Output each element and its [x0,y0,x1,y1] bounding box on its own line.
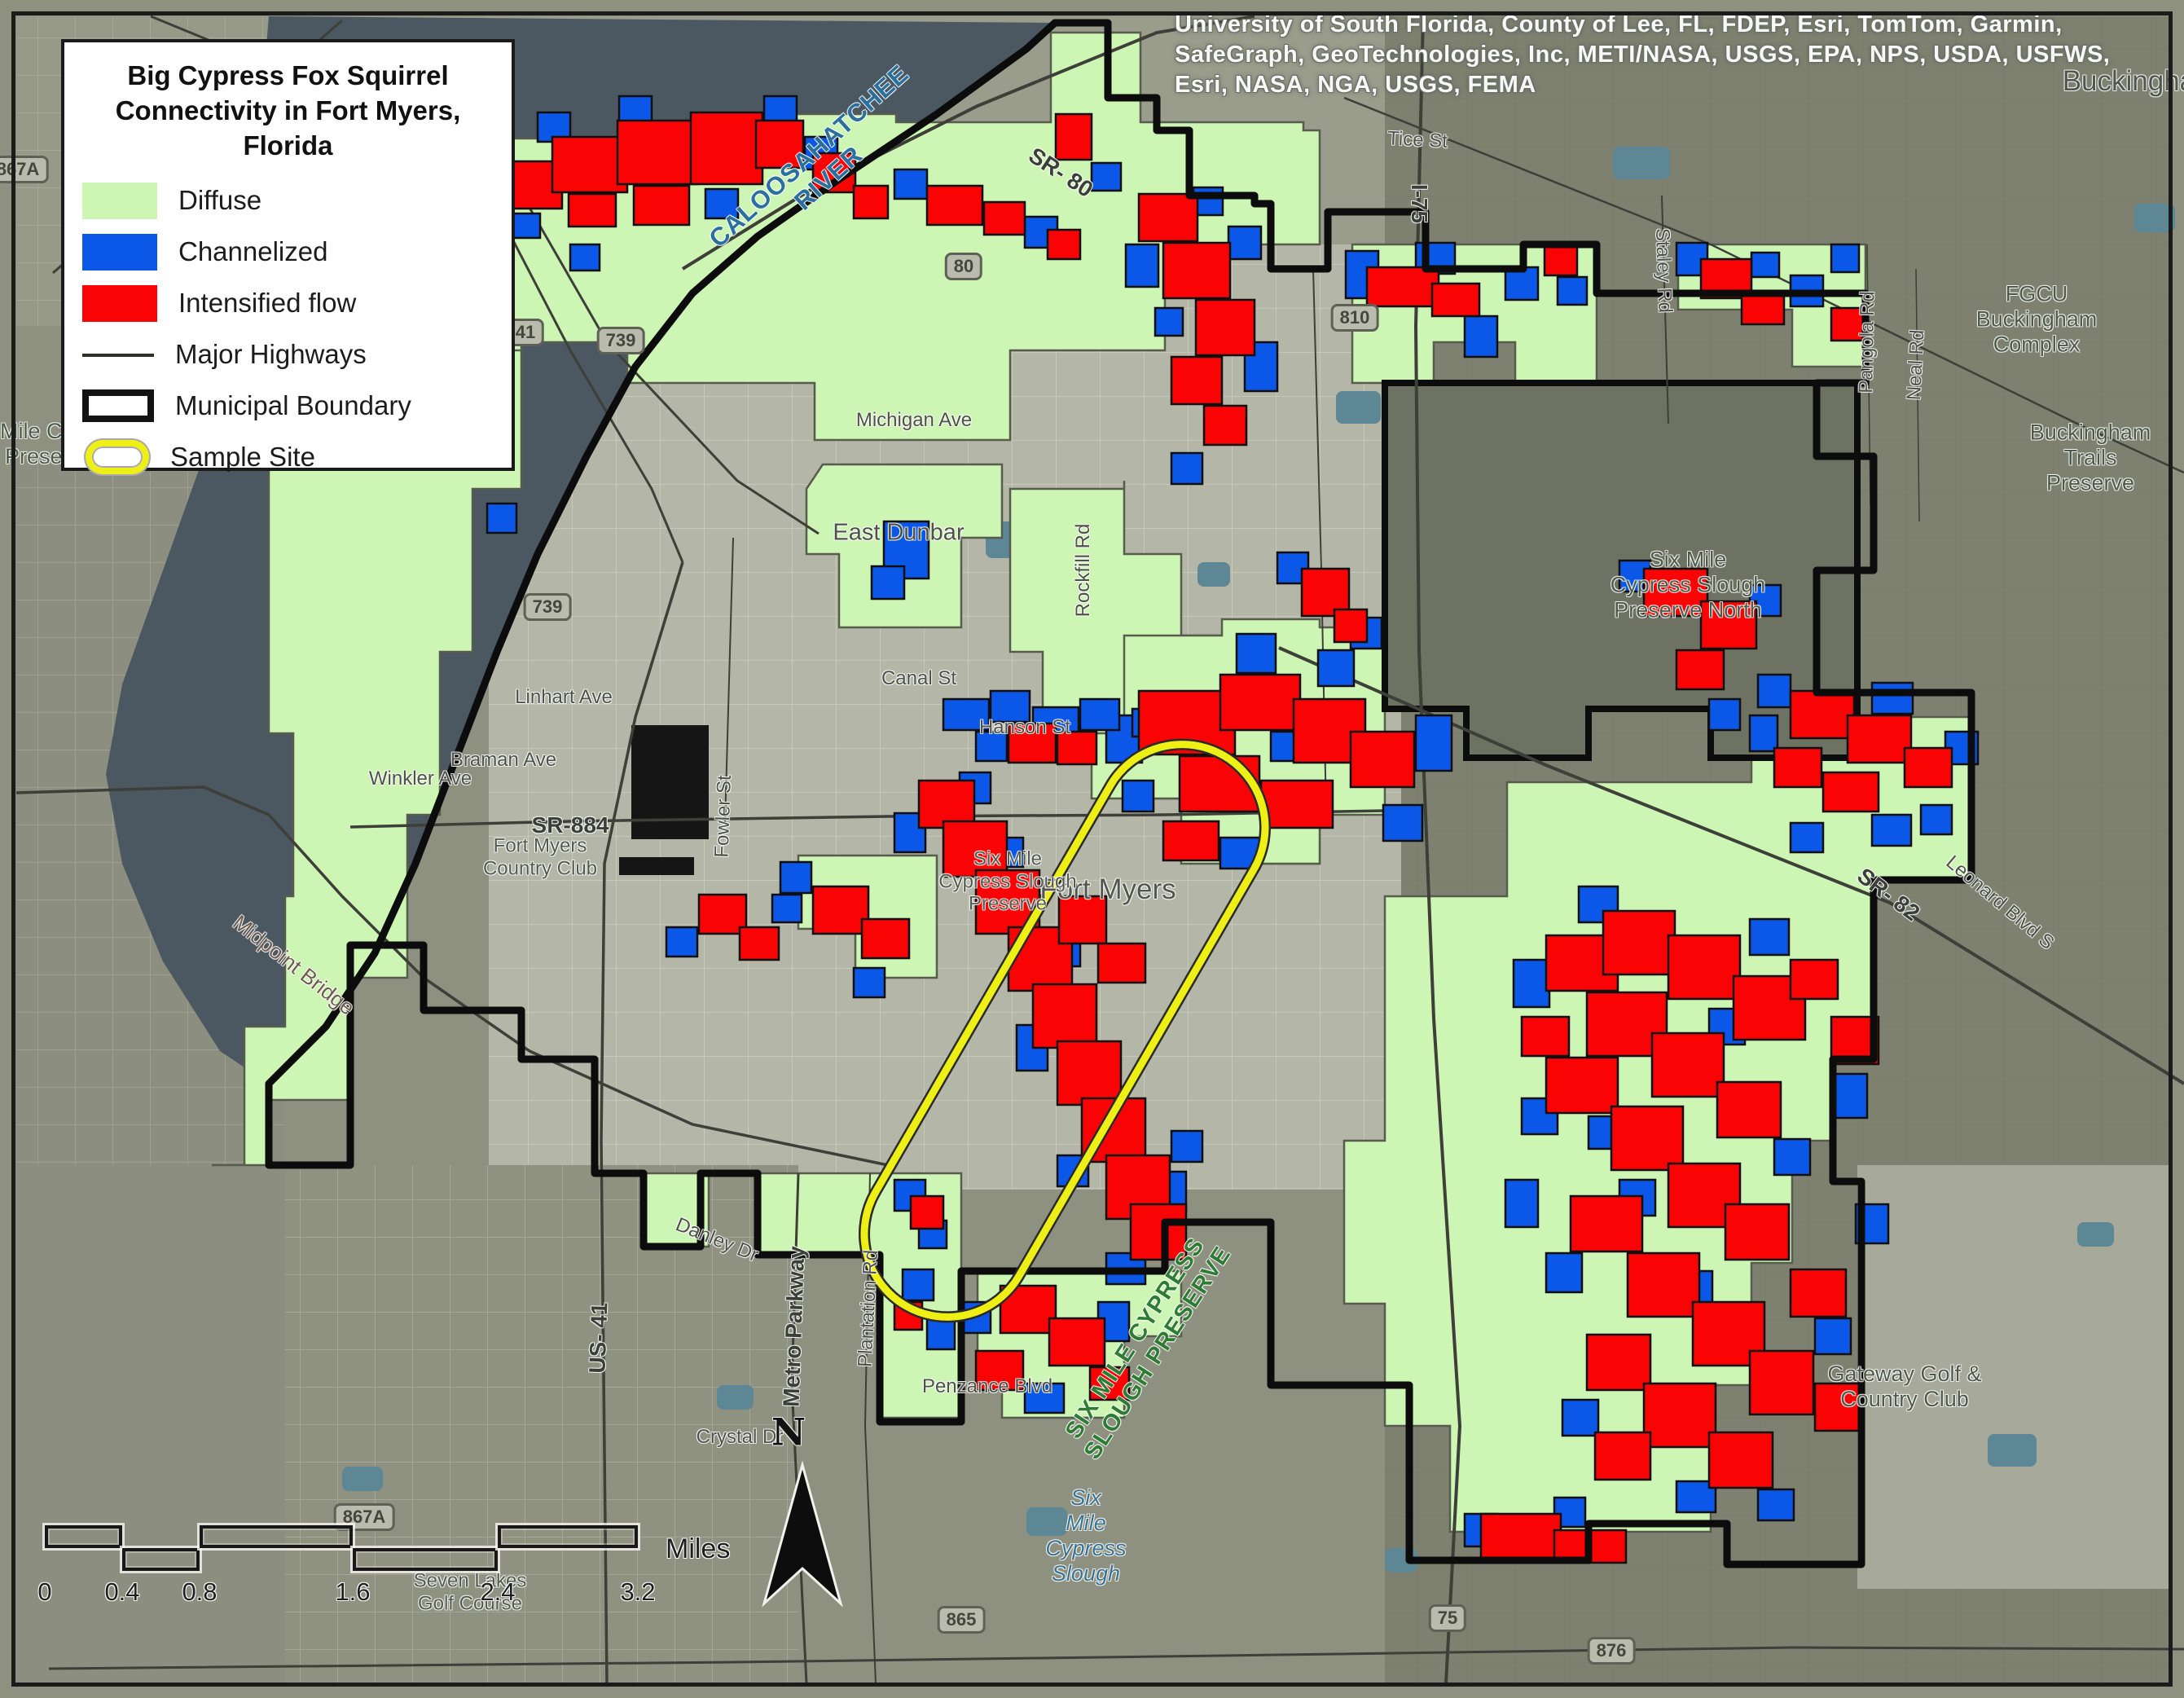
legend-item-label: Major Highways [175,339,367,370]
legend-swatch [86,440,149,474]
legend-item-municipal-boundary: Municipal Boundary [82,381,494,432]
attribution-line: SafeGraph, GeoTechnologies, Inc, METI/NA… [1175,40,2184,70]
scale-bar-tick: 0.8 [182,1577,217,1607]
legend-item-sample-site: Sample Site [82,432,494,483]
map-canvas: CALOOSAHATCHEE RIVERSR- 80Tice StI-75Sta… [0,0,2184,1698]
legend-item-diffuse: Diffuse [82,175,494,227]
legend-item-major-highways: Major Highways [82,329,494,381]
legend-item-label: Channelized [178,236,327,267]
scale-bar-unit: Miles [666,1533,730,1565]
scale-bar: 00.40.81.62.43.2 Miles [45,1525,778,1615]
scale-bar-tick: 1.6 [335,1577,370,1607]
scale-bar-tick: 3.2 [620,1577,655,1607]
legend-swatch [82,285,157,322]
attribution-line: University of South Florida, County of L… [1175,10,2184,40]
scale-bar-tick: 0 [37,1577,51,1607]
legend-box: Big Cypress Fox Squirrel Connectivity in… [61,39,515,471]
legend-item-label: Diffuse [178,185,261,216]
scale-bar-segment [498,1525,638,1548]
legend-item-channelized: Channelized [82,227,494,278]
legend-items: DiffuseChannelizedIntensified flowMajor … [82,175,494,483]
legend-title: Big Cypress Fox Squirrel Connectivity in… [87,59,489,164]
legend-item-intensified-flow: Intensified flow [82,278,494,329]
legend-swatch [82,354,154,357]
legend-swatch [82,389,154,422]
legend-item-label: Sample Site [170,442,315,473]
scale-bar-segment [200,1525,353,1548]
scale-bar-segment [353,1548,498,1571]
legend-swatch [82,183,157,219]
scale-bar-segment [45,1525,122,1548]
legend-item-label: Intensified flow [178,288,356,319]
scale-bar-segment [122,1548,200,1571]
attribution-text: University of South Florida, County of L… [1175,10,2184,100]
attribution-line: Esri, NASA, NGA, USGS, FEMA [1175,70,2184,100]
legend-item-label: Municipal Boundary [175,390,411,421]
scale-bar-tick: 0.4 [104,1577,139,1607]
scale-bar-tick: 2.4 [480,1577,515,1607]
legend-swatch [82,234,157,271]
